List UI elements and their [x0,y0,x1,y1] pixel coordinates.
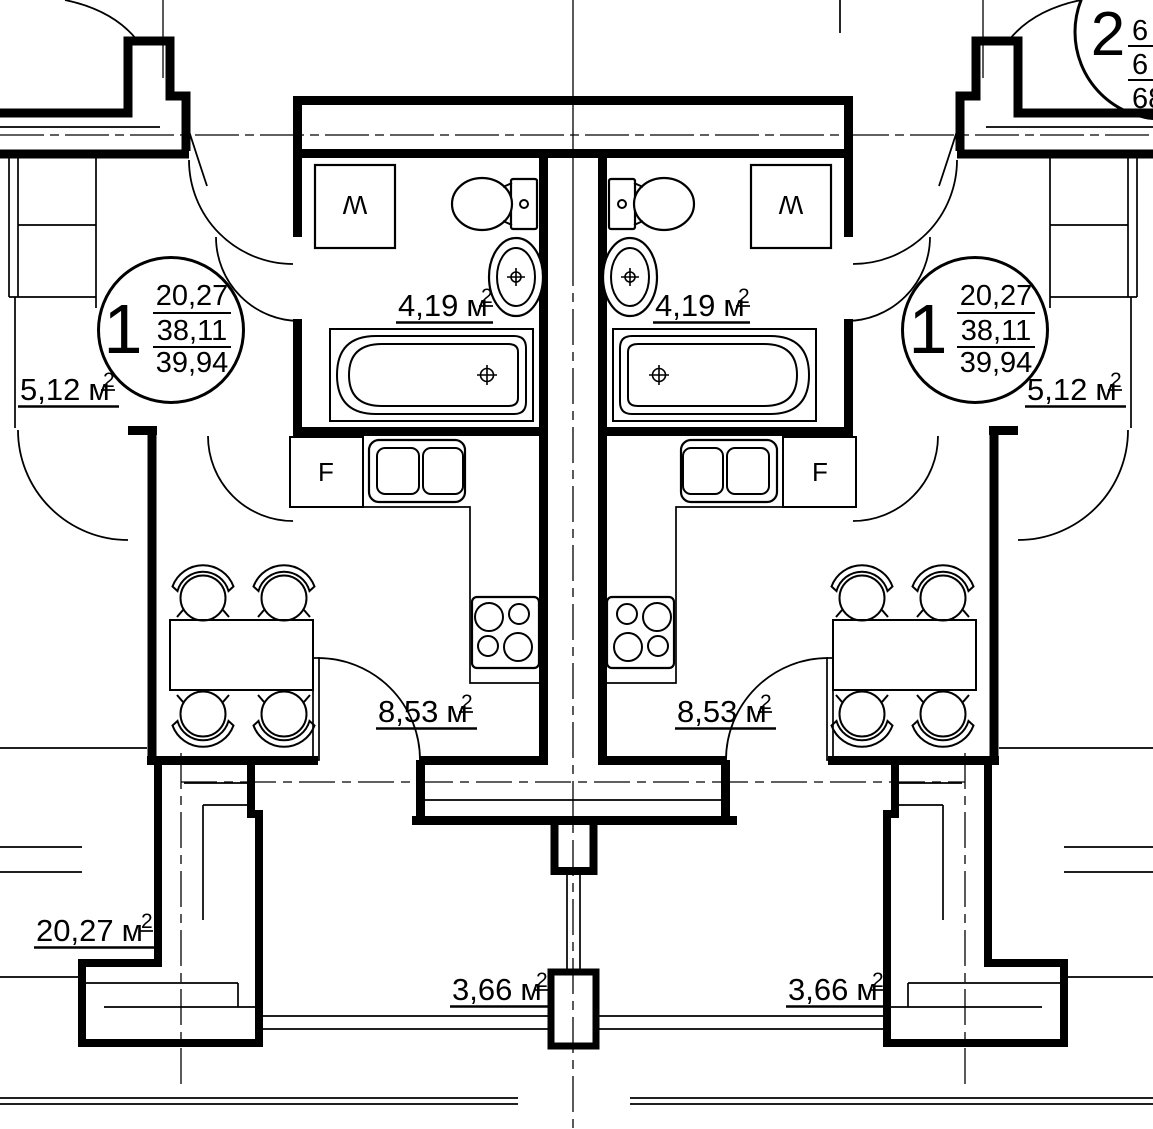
area-label-balcony-left: 3,66м 2 [450,969,551,1007]
apartment-number: 1 [909,290,948,368]
floor-plan-drawing: W W [0,0,1153,1129]
area-fragment: 6 [1132,49,1148,81]
thin-corridor-bottom [0,800,1153,1104]
sink-left [489,238,543,316]
svg-text:4,19м: 4,19м [398,288,488,323]
apartment-badge-left: 1 20,27 38,11 39,94 [99,258,244,403]
area-fragment: 6 [1132,15,1148,47]
toilet-tank-left [511,179,537,229]
toilet-bowl-left [452,178,512,230]
fridge-label-left: F [318,457,334,487]
svg-text:4,19м: 4,19м [655,288,745,323]
kitchen-sink-right [681,440,777,502]
area-total: 38,11 [157,315,227,347]
drain-icon [649,365,669,385]
toilet-tank-right [609,179,635,229]
stove-left [472,597,539,668]
stair-steps-left [82,783,259,1007]
chair [254,692,315,747]
svg-text:2: 2 [536,969,548,992]
bathtub-left [330,329,533,421]
table-right [833,620,976,690]
area-total-with-balcony: 39,94 [156,347,229,379]
area-label-living-room-left: 20,27м 2 [34,910,157,948]
axis-lines [0,0,1153,1129]
area-total: 38,11 [961,315,1031,347]
stove-right [607,597,674,668]
chair [254,565,315,620]
area-fragment: 68 [1132,83,1153,115]
stair-steps-right [887,783,1064,1007]
corridor-walls [412,760,737,821]
chair [913,565,974,620]
chair [832,565,893,620]
dining-set-right [832,565,977,747]
svg-text:2: 2 [738,285,750,308]
thin-lines [0,0,1153,1104]
fridge-label-right: F [812,457,828,487]
stove-outline-left [472,597,539,668]
kitchen-right: F [603,437,856,683]
bathroom-right: W [603,165,831,421]
toilet-bowl-right [634,178,694,230]
stair-structure-right [887,760,1064,1043]
area-living: 20,27 [960,280,1033,312]
area-label-bathroom-left: 4,19м 2 [396,285,493,323]
sink-right [603,238,657,316]
washing-machine-label-left: W [342,190,367,220]
svg-text:2: 2 [1110,369,1122,392]
svg-text:5,12м: 5,12м [1027,372,1117,407]
svg-text:2: 2 [760,691,772,714]
dining-set-left [170,565,315,747]
area-label-balcony-right: 3,66м 2 [786,969,887,1007]
toilet-right [609,178,694,230]
svg-text:3,66м: 3,66м [452,972,542,1007]
chair [832,692,893,747]
floor-plan-page: W W [0,0,1153,1129]
chair [913,692,974,747]
area-label-hallway-right: 5,12м 2 [1025,369,1126,407]
stair-structure-left [82,760,259,1043]
area-label-kitchen-right: 8,53м 2 [675,691,776,729]
svg-text:3,66м: 3,66м [788,972,878,1007]
table-left [170,620,313,690]
svg-text:2: 2 [872,969,884,992]
svg-text:2: 2 [141,910,153,933]
apartment-number-2: 2 [1091,0,1125,69]
chair [173,692,234,747]
walls [0,41,1153,1046]
thin-left [0,127,160,977]
svg-text:20,27м: 20,27м [36,913,143,948]
bathtub-outline-right [613,329,816,421]
area-label-kitchen-left: 8,53м 2 [376,691,477,729]
area-total-with-balcony: 39,94 [960,347,1033,379]
apartment-number: 1 [104,290,143,368]
bathtub-right [613,329,816,421]
area-labels: 4,19м 2 4,19м 2 5,12м 2 5,12м 2 8,53м 2 [18,285,1126,1007]
svg-text:2: 2 [481,285,493,308]
chair [173,565,234,620]
drain-icon [477,365,497,385]
area-living: 20,27 [156,280,229,312]
area-label-hallway-left: 5,12м 2 [18,369,119,407]
apartment-badge-right: 1 20,27 38,11 39,94 [903,258,1048,403]
svg-text:8,53м: 8,53м [378,694,468,729]
svg-text:8,53м: 8,53м [677,694,767,729]
area-label-bathroom-right: 4,19м 2 [653,285,750,323]
svg-text:5,12м: 5,12м [20,372,110,407]
stove-outline-right [607,597,674,668]
kitchen-sink-left [369,440,465,502]
apartment-badge-2-partial: 2 6 6 68 [1075,0,1153,119]
kitchen-left: F [290,437,543,683]
bathtub-outline-left [330,329,533,421]
corridor-stub-wall [555,818,594,871]
svg-text:2: 2 [461,691,473,714]
toilet-left [452,178,537,230]
washing-machine-label-right: W [778,190,803,220]
